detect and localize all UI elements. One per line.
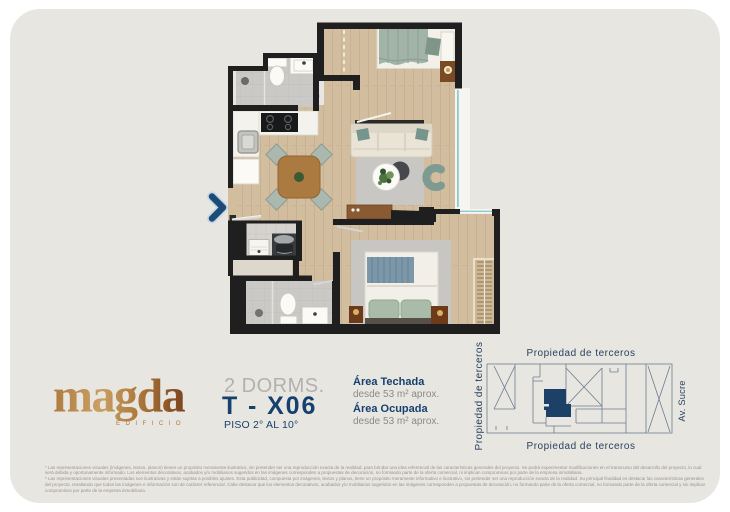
- svg-text:Propiedad de terceros: Propiedad de terceros: [474, 342, 485, 451]
- svg-text:EDIFICIO: EDIFICIO: [116, 420, 186, 427]
- svg-text:magda: magda: [53, 370, 186, 423]
- svg-text:Propiedad de terceros: Propiedad de terceros: [527, 441, 636, 452]
- svg-text:Av. Sucre: Av. Sucre: [677, 380, 687, 421]
- svg-text:Propiedad de terceros: Propiedad de terceros: [527, 348, 636, 359]
